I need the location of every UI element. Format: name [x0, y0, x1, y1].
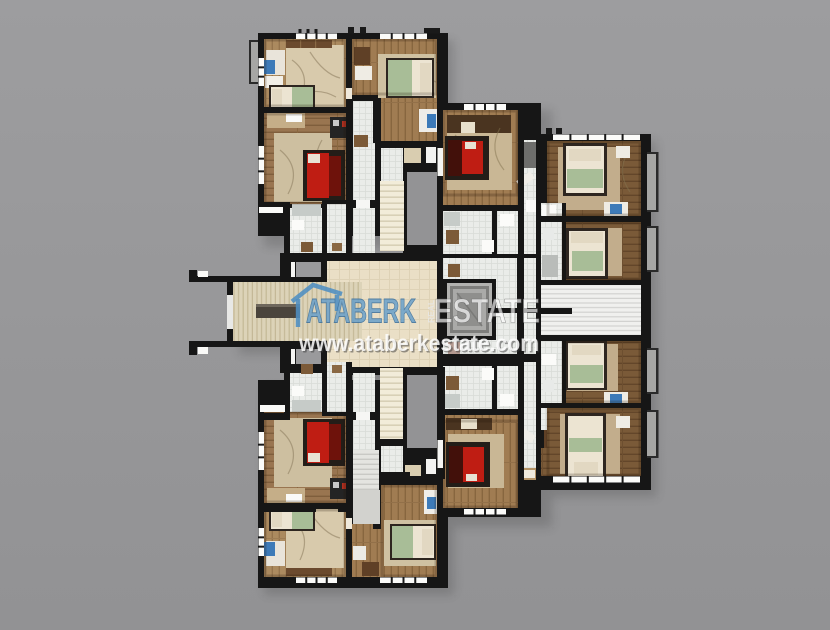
svg-text:www.ataberkestate.com: www.ataberkestate.com [298, 330, 539, 356]
svg-text:ATABERK: ATABERK [306, 293, 416, 331]
svg-text:ESTATE: ESTATE [434, 293, 540, 331]
